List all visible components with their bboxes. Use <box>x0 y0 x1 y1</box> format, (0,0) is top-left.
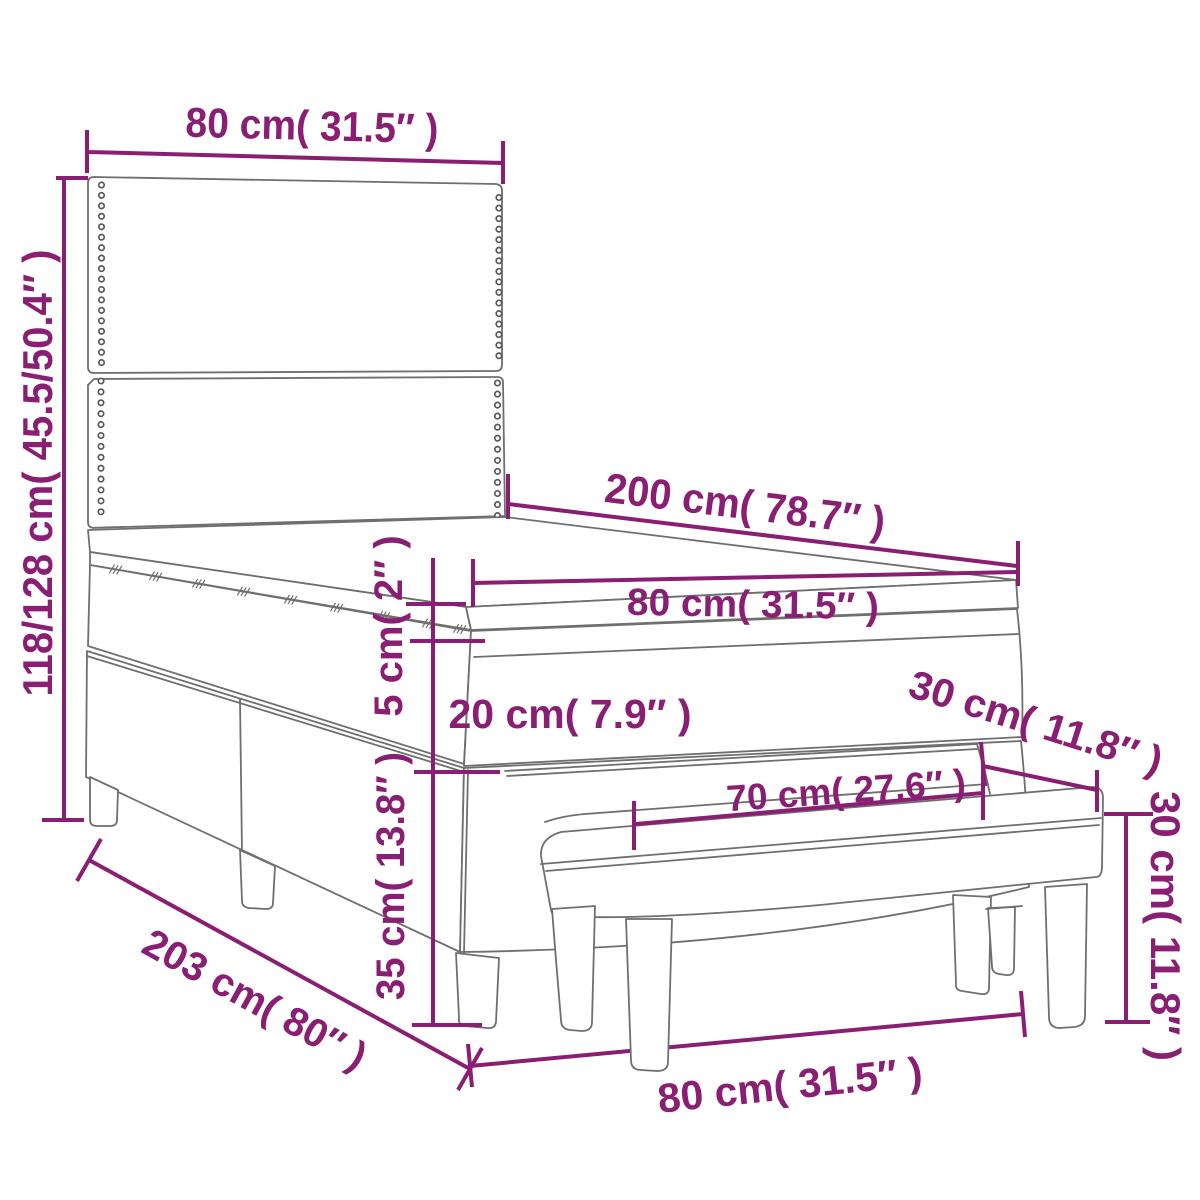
svg-text:80 cm( 31.5″ ): 80 cm( 31.5″ ) <box>627 582 880 628</box>
svg-text:35 cm( 13.8″ ): 35 cm( 13.8″ ) <box>369 752 413 1000</box>
svg-text:30 cm( 11.8″ ): 30 cm( 11.8″ ) <box>1142 791 1189 1061</box>
svg-text:80 cm( 31.5″ ): 80 cm( 31.5″ ) <box>185 99 439 153</box>
svg-text:118/128 cm( 45.5/50.4″ ): 118/128 cm( 45.5/50.4″ ) <box>14 250 61 697</box>
svg-text:5 cm( 2″ ): 5 cm( 2″ ) <box>367 535 411 716</box>
svg-text:20 cm( 7.9″ ): 20 cm( 7.9″ ) <box>449 691 692 737</box>
